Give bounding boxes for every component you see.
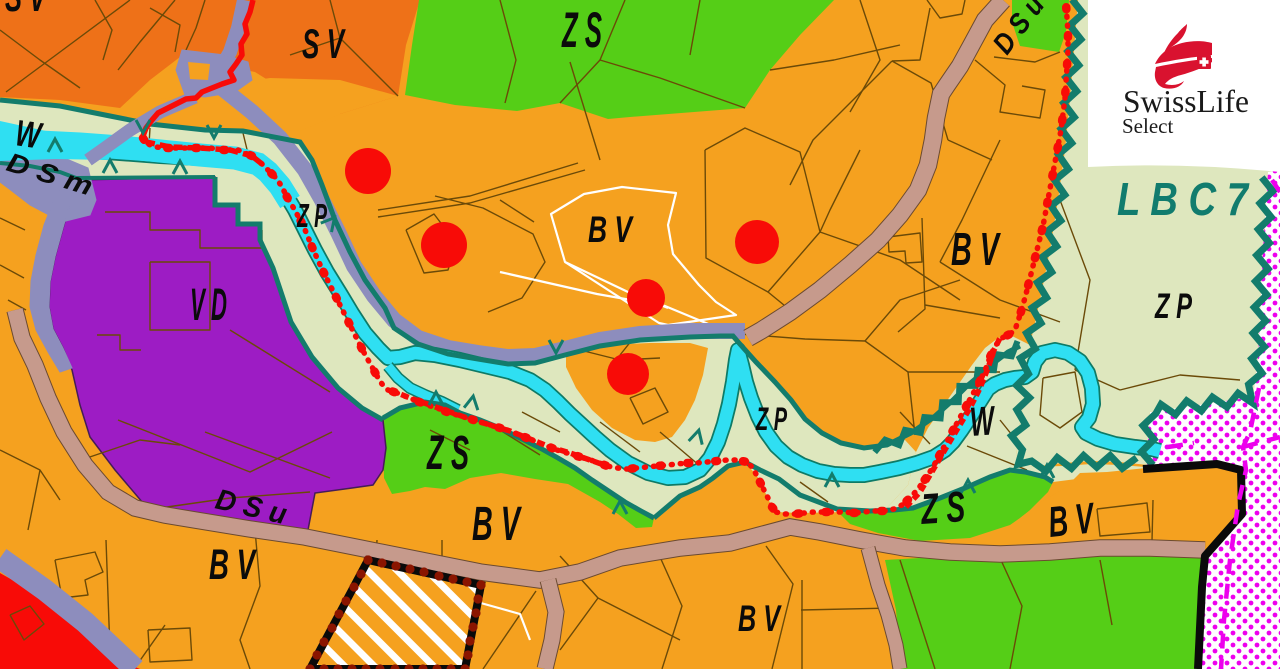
- svg-text:S V: S V: [5, 0, 48, 20]
- svg-text:B V: B V: [209, 541, 257, 589]
- svg-text:Z S: Z S: [561, 2, 602, 58]
- svg-text:Z P: Z P: [1154, 287, 1192, 326]
- svg-text:Z S: Z S: [426, 427, 469, 480]
- svg-text:V D: V D: [190, 279, 227, 330]
- svg-text:Z P: Z P: [296, 197, 327, 234]
- svg-text:Select: Select: [1122, 114, 1173, 138]
- svg-text:S V: S V: [302, 20, 346, 67]
- svg-text:B V: B V: [951, 223, 1001, 275]
- svg-text:Z S: Z S: [918, 483, 967, 534]
- svg-text:B V: B V: [588, 209, 634, 250]
- svg-text:Z P: Z P: [755, 401, 787, 437]
- svg-text:B V: B V: [472, 498, 522, 551]
- svg-text:B V: B V: [738, 598, 782, 639]
- svg-text:L B C 7: L B C 7: [1117, 173, 1250, 225]
- svg-text:B V: B V: [1046, 494, 1098, 547]
